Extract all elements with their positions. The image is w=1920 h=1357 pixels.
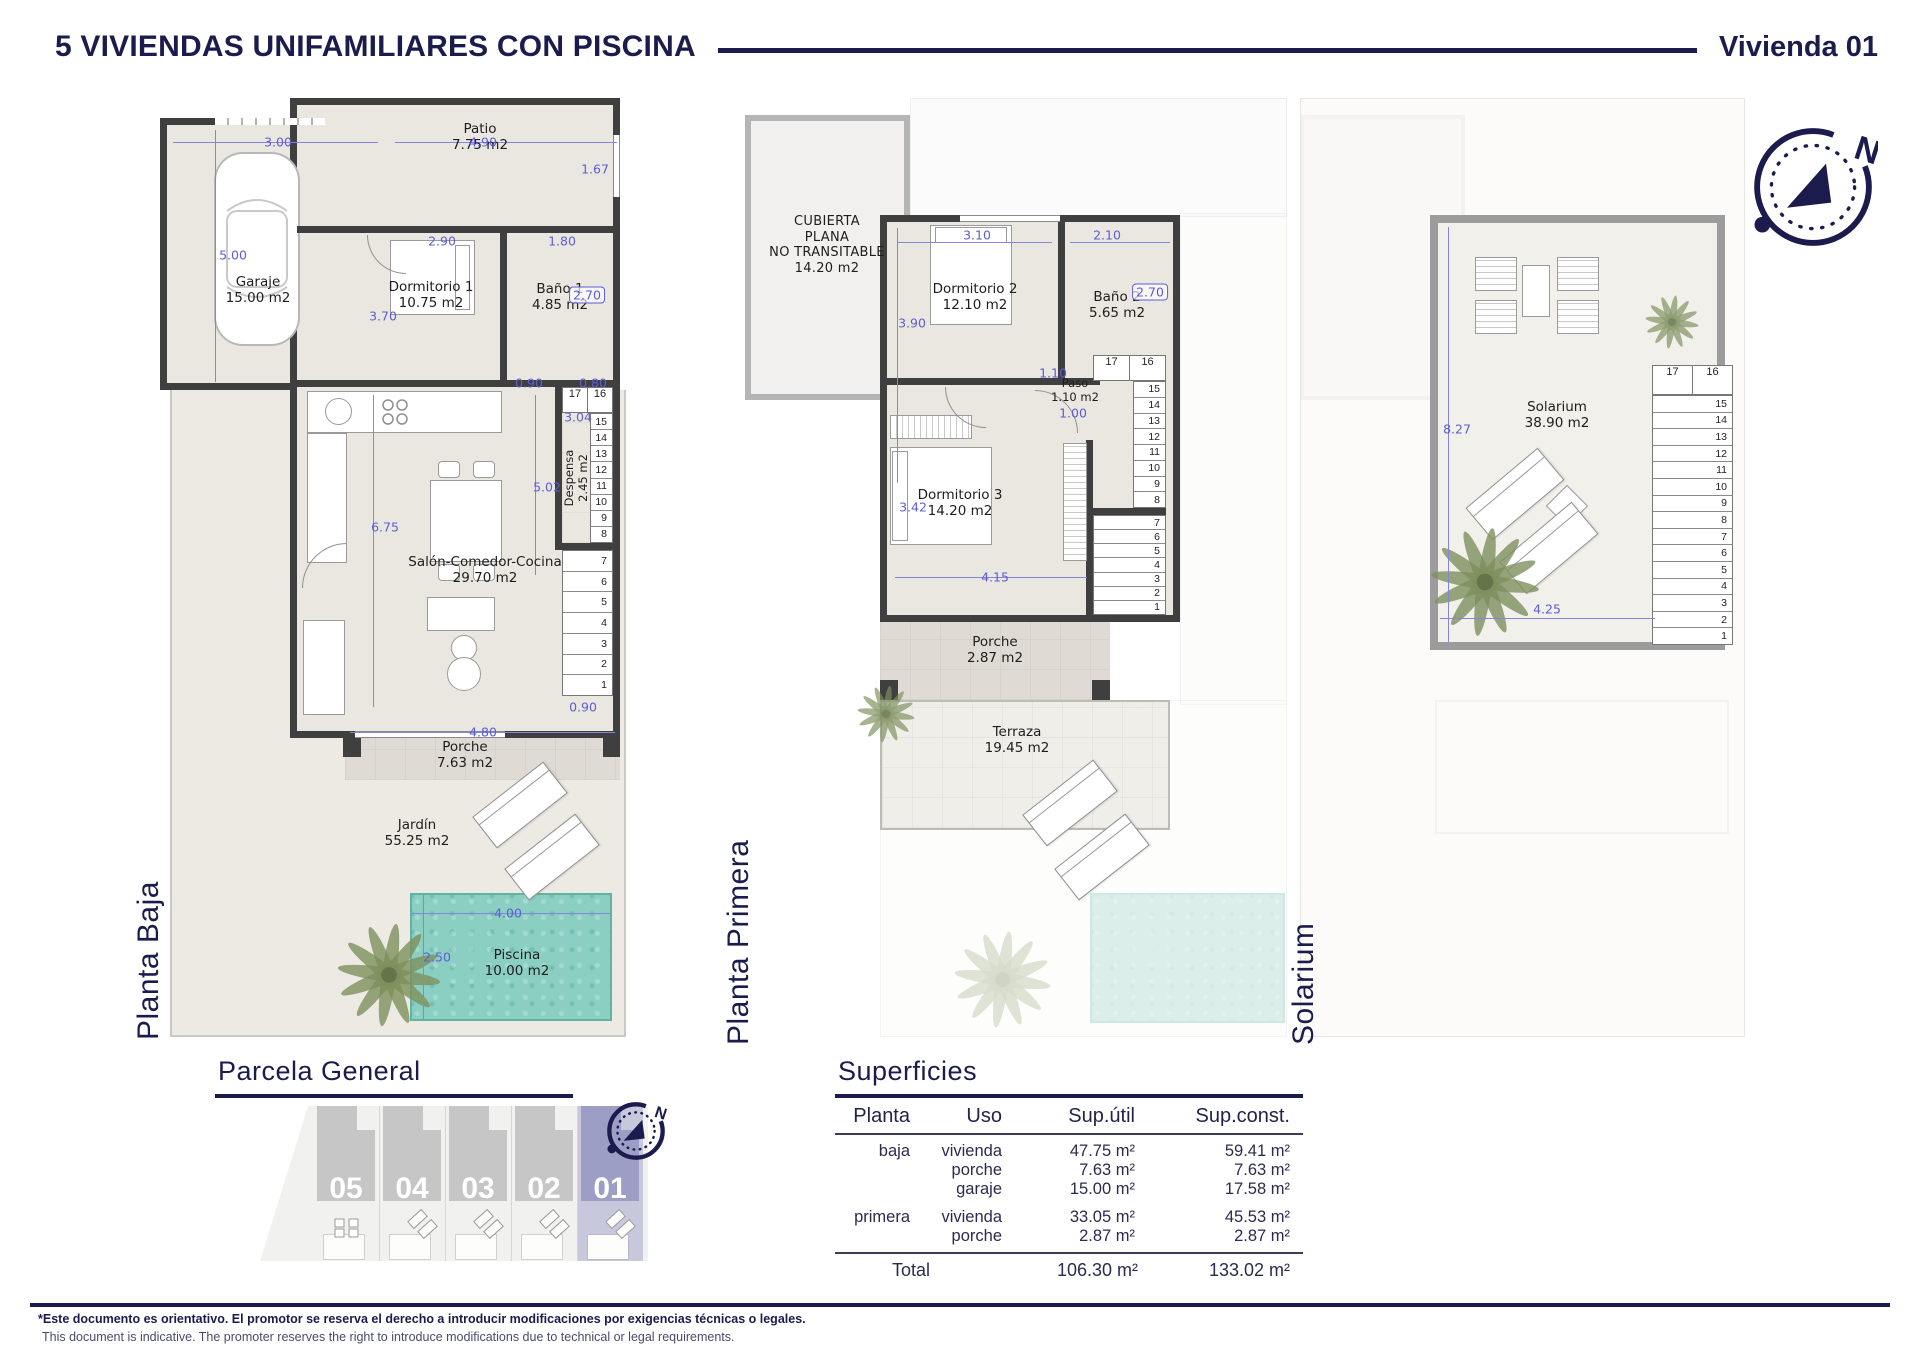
porche-pillar <box>603 735 620 757</box>
stair-tread: 14 <box>1134 398 1165 414</box>
ghost-patio-below <box>910 98 1287 217</box>
wall-patio <box>297 226 613 233</box>
footer-rule <box>30 1303 1890 1307</box>
total-util: 106.30 m² <box>1000 1260 1138 1281</box>
compass-icon-small: N <box>605 1100 667 1162</box>
sofa <box>303 620 345 715</box>
stair-tread: 1 <box>563 675 612 695</box>
dim: 3.90 <box>898 316 926 331</box>
patio-chair <box>1557 257 1599 291</box>
dim: 4.00 <box>494 906 522 921</box>
dim: 3.70 <box>369 309 397 324</box>
plan-planta-primera: CUBIERTA PLANA NO TRANSITABLE 14.20 m2 1… <box>745 95 1290 1040</box>
table-header-line <box>835 1133 1303 1135</box>
porche-pillar <box>343 735 361 757</box>
stair-tread: 15 <box>1653 396 1732 413</box>
stair-tread: 11 <box>1134 445 1165 461</box>
floor-label-planta-primera: Planta Primera <box>722 840 756 1045</box>
chair <box>473 461 495 478</box>
superficies-rule <box>835 1094 1303 1098</box>
stair-tread: 6 <box>1094 530 1165 544</box>
stairs-lower: 7654321 <box>562 550 613 696</box>
stair-tread: 1 <box>1094 601 1165 614</box>
dim: 0.90 <box>515 376 543 391</box>
stair-tread: 4 <box>1653 579 1732 596</box>
stairs-upper-p1: 15141312111098 <box>1133 381 1166 508</box>
stair-tread: 8 <box>1653 512 1732 529</box>
plan-solarium: 17 16 151413121110987654321 Solarium38.9… <box>1300 95 1745 1040</box>
header-rule <box>718 48 1697 53</box>
sofa-2 <box>427 597 495 631</box>
dim: 0.80 <box>579 376 607 391</box>
patio-chair <box>1475 300 1517 334</box>
patio-table <box>1522 265 1550 317</box>
kitchen-sink <box>325 398 352 425</box>
stair-tread: 4 <box>563 613 612 634</box>
ghost-terraza <box>1435 700 1729 834</box>
stair-tread: 9 <box>1653 496 1732 513</box>
dim: 1.10 <box>1039 366 1067 381</box>
dimension-line <box>215 130 216 382</box>
stair-tread: 9 <box>1134 477 1165 493</box>
palm-icon <box>1426 523 1544 641</box>
stair-tread: 2 <box>1653 612 1732 629</box>
stair-top-cells-sol: 17 16 <box>1652 365 1733 395</box>
room-label-dormitorio2: Dormitorio 212.10 m2 <box>933 281 1018 313</box>
dim: 5.00 <box>219 248 247 263</box>
stair-tread: 6 <box>563 572 612 593</box>
stair-tread: 2 <box>1094 587 1165 601</box>
room-label-salon: Salón-Comedor-Cocina29.70 m2 <box>408 554 562 586</box>
footer-disclaimer-en: This document is indicative. The promote… <box>42 1330 734 1344</box>
plot-number: 04 <box>379 1172 445 1206</box>
plot-number: 01 <box>577 1172 643 1206</box>
stair-tread: 3 <box>1653 595 1732 612</box>
stair-tread: 14 <box>591 430 612 446</box>
room-label-despensa: Despensa2.45 m2 <box>563 450 591 507</box>
tree-icon <box>1643 293 1701 351</box>
wall-dorm3-stairs <box>1086 440 1093 622</box>
parcela-rule <box>215 1094 573 1098</box>
closet <box>1063 443 1087 561</box>
superficies-title: Superficies <box>838 1056 977 1087</box>
stair-tread: 8 <box>1134 492 1165 507</box>
stair-tread: 3 <box>563 634 612 655</box>
col-header-uso: Uso <box>880 1105 1002 1128</box>
stair-top-cells-p1: 17 16 <box>1093 355 1166 381</box>
stair-tread: 7 <box>563 551 612 572</box>
ghost-side-below <box>1180 213 1287 705</box>
stair-tread: 13 <box>1134 414 1165 430</box>
dim: 1.00 <box>1059 406 1087 421</box>
stair-tread: 13 <box>1653 429 1732 446</box>
stair-tread: 12 <box>591 462 612 478</box>
dim: 0.90 <box>569 700 597 715</box>
dimension-line <box>373 395 374 707</box>
patio-window <box>613 135 620 197</box>
header: 5 VIVIENDAS UNIFAMILIARES CON PISCINA Vi… <box>55 30 1878 64</box>
stair-tread: 5 <box>1094 544 1165 558</box>
stair-tread: 4 <box>1094 558 1165 572</box>
dim: 6.75 <box>371 520 399 535</box>
total-label: Total <box>830 1260 930 1281</box>
side-table <box>447 657 481 691</box>
stair-tread: 7 <box>1094 516 1165 530</box>
chair <box>438 461 460 478</box>
col-header-const: Sup.const. <box>1150 1105 1290 1128</box>
wall-dorm1-bano1 <box>500 226 507 387</box>
stair-tread: 12 <box>1134 429 1165 445</box>
dim: 1.80 <box>548 234 576 249</box>
dim: 5.02 <box>533 480 561 495</box>
stair-tread: 10 <box>591 495 612 511</box>
dim: 3.42 <box>899 500 927 515</box>
room-label-cubierta: CUBIERTA PLANA NO TRANSITABLE 14.20 m2 <box>769 214 885 276</box>
stair-tread: 10 <box>1653 479 1732 496</box>
room-label-porche: Porche7.63 m2 <box>437 739 493 771</box>
dimension-line <box>897 228 898 483</box>
table-total-line <box>835 1252 1303 1254</box>
stair-tread: 6 <box>1653 545 1732 562</box>
stair-tread: 2 <box>563 655 612 676</box>
stair-tread: 12 <box>1653 446 1732 463</box>
tree-icon <box>855 683 917 745</box>
stair-tread: 5 <box>1653 562 1732 579</box>
mini-table-icon <box>334 1218 360 1238</box>
stair-tread: 8 <box>591 527 612 542</box>
dining-table <box>430 480 502 562</box>
stair-tread: 11 <box>1653 462 1732 479</box>
compass-north: N <box>1850 129 1878 173</box>
dim: 3.04 <box>564 410 592 425</box>
plot-number: 03 <box>445 1172 511 1206</box>
room-label-terraza: Terraza19.45 m2 <box>985 724 1050 756</box>
stair-tread: 15 <box>1134 382 1165 398</box>
dim: 2.70 <box>569 287 605 304</box>
dim: 2.50 <box>423 950 451 965</box>
footer-disclaimer-es: *Este documento es orientativo. El promo… <box>38 1312 806 1326</box>
plot-number: 05 <box>313 1172 379 1206</box>
dim: 4.15 <box>981 570 1009 585</box>
stair-tread: 14 <box>1653 413 1732 430</box>
unit-title: Vivienda 01 <box>1719 31 1878 64</box>
dim: 2.10 <box>1093 228 1121 243</box>
bed-pillow <box>892 451 908 541</box>
page-title: 5 VIVIENDAS UNIFAMILIARES CON PISCINA <box>55 30 696 64</box>
site-plan: 05 04 03 02 01 <box>248 1106 648 1261</box>
porche-pillar <box>1092 680 1110 700</box>
compass-icon: N <box>1748 122 1878 252</box>
parcela-title: Parcela General <box>218 1056 421 1087</box>
stair-tread: 10 <box>1134 461 1165 477</box>
dim: 4.80 <box>469 725 497 740</box>
wall-stair-stub-p1 <box>1093 508 1166 515</box>
stair-tread: 5 <box>563 592 612 613</box>
dim: 4.25 <box>1533 602 1561 617</box>
floor-label-planta-baja: Planta Baja <box>132 881 166 1040</box>
stair-tread: 15 <box>591 414 612 430</box>
room-label-dormitorio3: Dormitorio 314.20 m2 <box>918 487 1003 519</box>
patio-chair <box>1475 257 1517 291</box>
floor-label-solarium: Solarium <box>1287 923 1321 1045</box>
stair-tread: 1 <box>1653 628 1732 644</box>
wall-stair-stub <box>555 543 613 550</box>
patio-chair <box>1557 300 1599 334</box>
stair-tread: 13 <box>591 446 612 462</box>
plan-planta-baja: 17 16 15141312111098 7654321 <box>155 95 635 1040</box>
room-label-porche-p1: Porche2.87 m2 <box>967 634 1023 666</box>
wall-despensa <box>555 387 562 550</box>
stair-tread: 3 <box>1094 573 1165 587</box>
terraza <box>880 700 1170 830</box>
stair-tread: 11 <box>591 479 612 495</box>
stair-tread: 9 <box>591 511 612 527</box>
stair-tread: 7 <box>1653 529 1732 546</box>
dim: 1.67 <box>581 162 609 177</box>
wall-dorm2-bano2 <box>1058 222 1065 385</box>
plot-number: 02 <box>511 1172 577 1206</box>
dorm2-window <box>960 215 1060 222</box>
room-label-garaje: Garaje15.00 m2 <box>226 274 291 306</box>
dim: 2.90 <box>428 234 456 249</box>
dim: 3.00 <box>264 135 292 150</box>
stairs-lower-p1: 7654321 <box>1093 515 1166 615</box>
wall-dorm-row <box>297 380 613 387</box>
palm-icon <box>333 919 445 1031</box>
room-label-paso: Paso1.10 m2 <box>1051 377 1099 405</box>
col-header-util: Sup.útil <box>1000 1105 1135 1128</box>
kitchen-hob <box>380 397 410 427</box>
plan-sheet: 5 VIVIENDAS UNIFAMILIARES CON PISCINA Vi… <box>0 0 1920 1357</box>
dim: 4.90 <box>469 135 497 150</box>
room-label-dormitorio1: Dormitorio 110.75 m2 <box>389 279 474 311</box>
dimension-line <box>1440 618 1655 619</box>
garage-door <box>215 118 325 125</box>
room-label-jardin: Jardín55.25 m2 <box>385 817 450 849</box>
dim: 3.10 <box>963 228 991 243</box>
dim: 2.70 <box>1132 284 1168 301</box>
stairs-upper: 15141312111098 <box>590 413 613 543</box>
compass-north: N <box>652 1103 667 1124</box>
stairs-solarium: 151413121110987654321 <box>1652 395 1733 645</box>
total-const: 133.02 m² <box>1150 1260 1290 1281</box>
dim: 8.27 <box>1443 422 1471 437</box>
room-label-solarium: Solarium38.90 m2 <box>1525 399 1590 431</box>
room-label-piscina: Piscina10.00 m2 <box>485 947 550 979</box>
